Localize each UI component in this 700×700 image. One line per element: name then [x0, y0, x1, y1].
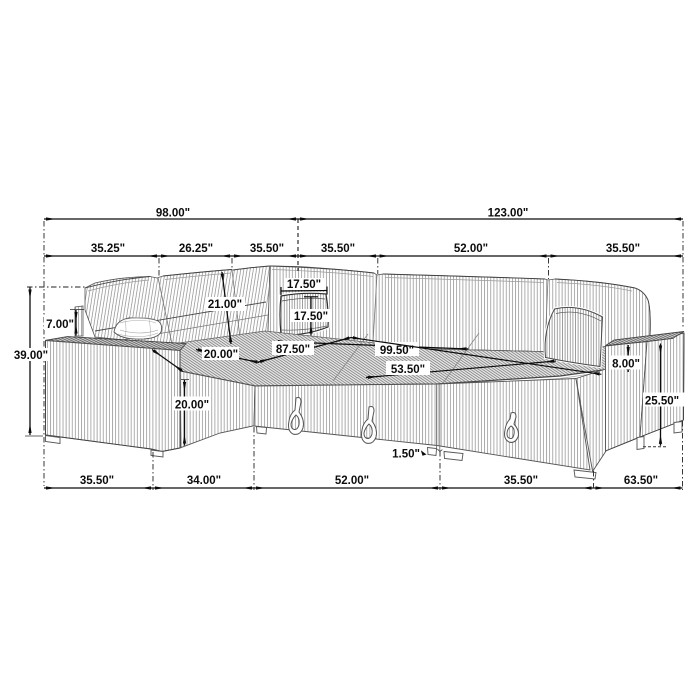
- svg-text:17.50": 17.50": [294, 311, 328, 323]
- svg-text:26.25": 26.25": [179, 243, 213, 255]
- svg-text:53.50": 53.50": [391, 364, 425, 376]
- svg-text:1.50": 1.50": [392, 449, 420, 461]
- svg-text:99.50": 99.50": [380, 345, 414, 357]
- svg-text:35.50": 35.50": [80, 475, 114, 487]
- svg-text:7.00": 7.00": [46, 319, 74, 331]
- svg-text:123.00": 123.00": [488, 208, 529, 220]
- svg-text:39.00": 39.00": [14, 350, 48, 362]
- svg-text:98.00": 98.00": [156, 208, 190, 220]
- svg-text:35.50": 35.50": [321, 243, 355, 255]
- svg-text:63.50": 63.50": [624, 475, 658, 487]
- svg-text:35.50": 35.50": [504, 475, 538, 487]
- svg-text:34.00": 34.00": [187, 475, 221, 487]
- svg-text:35.25": 35.25": [91, 243, 125, 255]
- svg-text:35.50": 35.50": [606, 243, 640, 255]
- svg-text:20.00": 20.00": [175, 400, 209, 412]
- svg-text:25.50": 25.50": [645, 396, 679, 408]
- svg-text:52.00": 52.00": [335, 475, 369, 487]
- svg-text:21.00": 21.00": [208, 299, 242, 311]
- svg-text:35.50": 35.50": [250, 243, 284, 255]
- svg-text:17.50": 17.50": [287, 279, 321, 291]
- svg-text:8.00": 8.00": [612, 359, 640, 371]
- svg-text:52.00": 52.00": [454, 243, 488, 255]
- svg-text:87.50": 87.50": [276, 344, 310, 356]
- svg-text:20.00": 20.00": [204, 349, 238, 361]
